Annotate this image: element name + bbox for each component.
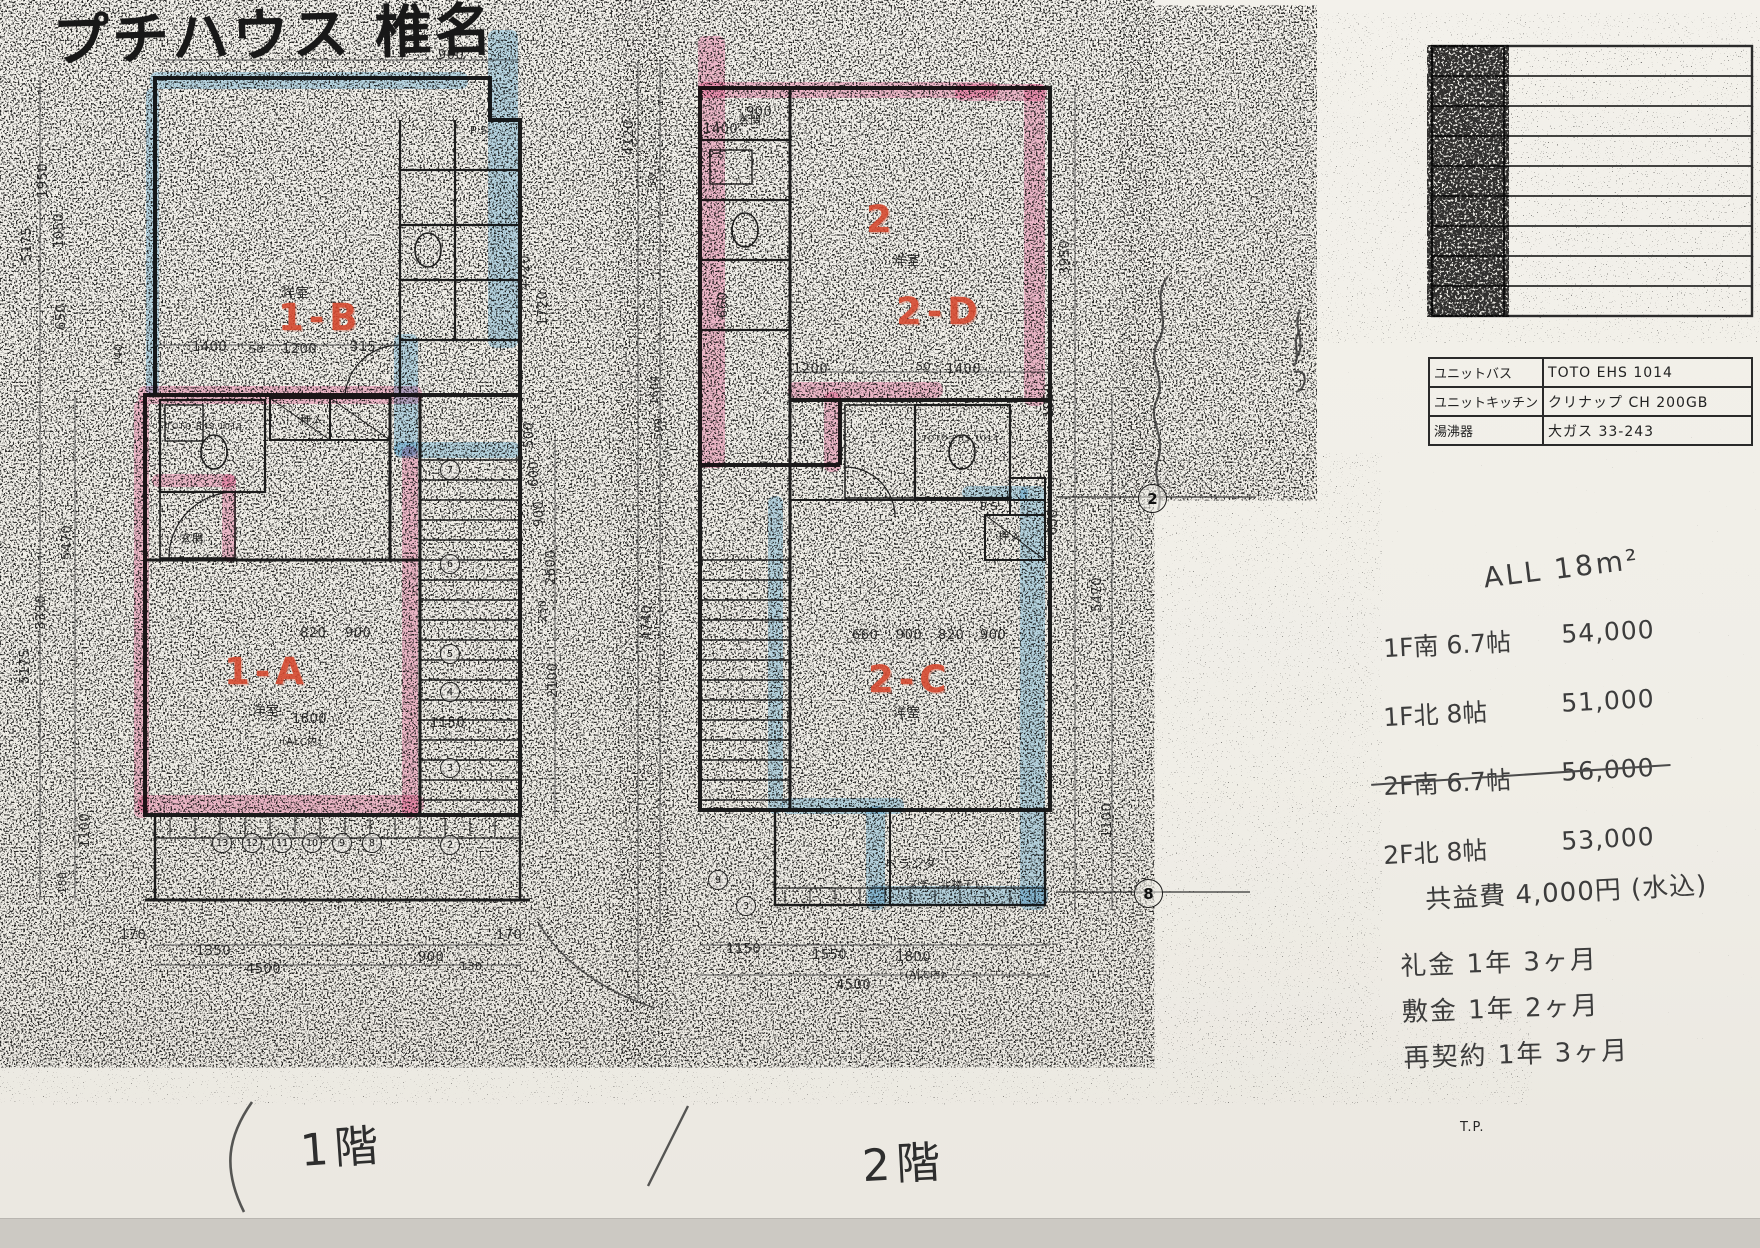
- term-lines: 礼金 1年 3ヶ月敷金 1年 2ヶ月再契約 1年 3ヶ月: [1400, 938, 1630, 1084]
- rent-price: 54,000: [1561, 615, 1656, 656]
- plan-dim: 1150: [726, 942, 761, 957]
- plan-circ: 4: [440, 682, 460, 702]
- plan-room: スチール物干し: [908, 876, 985, 891]
- plan-dim: 1950: [36, 163, 51, 198]
- plan-dim: 3330: [34, 595, 49, 630]
- plan-dim: 1100: [78, 813, 93, 848]
- plan-dim: 50: [646, 173, 659, 188]
- plan-dim: 180: [56, 872, 69, 895]
- tp-note: T.P.: [1460, 1120, 1484, 1135]
- plan-circ: 5: [440, 644, 460, 664]
- plan-dim: 1100: [1100, 803, 1115, 838]
- floor2-label: 2階: [860, 1126, 947, 1194]
- plan-circ: 6: [440, 554, 460, 574]
- plan-dim: 1720: [536, 291, 551, 326]
- plan-dim: 1350: [196, 944, 231, 959]
- equipment-label: ユニットバス: [1429, 358, 1543, 387]
- plan-circ: 2: [440, 835, 460, 855]
- plan-room: 洋室: [252, 700, 280, 719]
- plan-circ: 9: [332, 833, 352, 853]
- plan-dim: 50: [916, 360, 931, 373]
- plan-room: P.S.: [470, 124, 493, 137]
- plan-dim: 5175: [20, 227, 35, 262]
- plan-dim: 140: [112, 344, 125, 367]
- plan-room: 洋室: [893, 250, 921, 269]
- unit-label-1b: 1-B: [278, 296, 362, 339]
- rent-room: 1F南 6.7帖: [1382, 622, 1512, 665]
- plan-dim: 599: [652, 418, 665, 441]
- rent-price: 56,000: [1561, 753, 1656, 794]
- rent-room: 1F北 8帖: [1382, 693, 1488, 734]
- unit-label-2c: 2-C: [868, 658, 951, 701]
- plan-room: P.S.: [708, 150, 729, 161]
- plan-dim: 315: [350, 340, 376, 355]
- plan-circ: 13: [212, 833, 232, 853]
- plan-dim: 900: [980, 628, 1006, 643]
- plan-dim: 130: [460, 960, 483, 973]
- equipment-table: ユニットバスTOTO EHS 1014ユニットキッチンクリナップ CH 200G…: [1428, 357, 1753, 446]
- floor2-number: 2: [866, 198, 897, 241]
- plan-dim: 1050: [52, 213, 67, 248]
- plan-dim: 660: [716, 292, 731, 318]
- plan-dim: 900: [418, 950, 444, 965]
- plan-circ: 10: [302, 833, 322, 853]
- term-line: 敷金 1年 2ヶ月: [1401, 984, 1628, 1029]
- equipment-row: ユニットバスTOTO EHS 1014: [1429, 358, 1752, 387]
- plan-circ: 7: [440, 460, 460, 480]
- equipment-row: ユニットキッチンクリナップ CH 200GB: [1429, 387, 1752, 416]
- plan-dim: 170: [496, 928, 522, 943]
- plan-dim: 1400: [192, 340, 227, 355]
- plan-dim: 1800: [292, 712, 327, 727]
- plan-dim: 900: [532, 501, 547, 527]
- equipment-label: 湯沸器: [1429, 416, 1543, 445]
- plan-dim: 1550: [812, 948, 847, 963]
- plan-dim: 900: [746, 105, 772, 120]
- rent-room: 2F北 8帖: [1382, 831, 1488, 872]
- unit-label-1a: 1-A: [224, 650, 309, 693]
- plan-circ: 9: [708, 870, 728, 890]
- plan-dim: 600: [527, 461, 542, 487]
- plan-dim: 170: [120, 928, 146, 943]
- rent-room: 2F南 6.7帖: [1382, 760, 1512, 803]
- plan-room: 玄関: [180, 530, 204, 546]
- plan-dim: 3950: [1058, 240, 1073, 275]
- term-line: 再契約 1年 3ヶ月: [1403, 1030, 1630, 1075]
- plan-dim: 5175: [18, 649, 33, 684]
- plan-dim: 650: [1046, 509, 1061, 535]
- rent-line: 2F北 8帖53,000: [1382, 822, 1656, 872]
- sheet-title: プチハウス 椎名: [51, 0, 496, 78]
- plan-dim: 1200: [282, 342, 317, 357]
- equipment-row: 湯沸器大ガス 33-243: [1429, 416, 1752, 445]
- plan-dim: 900: [896, 628, 922, 643]
- plan-dim: 900: [345, 626, 371, 641]
- plan-dim: (ALC内): [282, 733, 322, 748]
- plan-dim: 820: [938, 628, 964, 643]
- plan-room: 押入: [300, 412, 324, 428]
- rent-line: 2F南 6.7帖56,000: [1382, 753, 1656, 803]
- plan-circ: 8: [362, 833, 382, 853]
- plan-circ: 11: [272, 833, 292, 853]
- plan-circ: 3: [440, 758, 460, 778]
- plan-dim: 1604: [648, 375, 661, 405]
- plan-room: 洋室: [282, 282, 310, 301]
- plan-circ: 12: [242, 833, 262, 853]
- plan-dim: 5470: [1090, 577, 1105, 612]
- plan-room: TOTO EHS 1014: [166, 422, 243, 431]
- plan-dim: (ALC内): [905, 966, 945, 981]
- equipment-label: ユニットキッチン: [1429, 387, 1543, 416]
- plan-dim: 2600: [544, 550, 559, 585]
- plan-dim: 1400: [703, 122, 738, 137]
- rent-price: 51,000: [1561, 684, 1656, 725]
- plan-dim: 4720: [518, 255, 533, 290]
- plan-dim: 820: [300, 626, 326, 641]
- paper-edge: [0, 1218, 1760, 1248]
- unit-label-2d: 2-D: [896, 290, 983, 333]
- plan-dim: 1200: [793, 362, 828, 377]
- plan-dim: 50: [249, 343, 264, 356]
- plan-dim: 4500: [836, 978, 871, 993]
- plan-room: 洋室: [893, 702, 921, 721]
- plan-circ: 3: [736, 896, 756, 916]
- plan-dim: 250: [536, 600, 549, 623]
- plan-dim: 650: [54, 304, 69, 330]
- plan-dim: 1800: [896, 950, 931, 965]
- rent-line: 1F北 8帖51,000: [1382, 684, 1656, 734]
- grid-marker-8: 8: [1134, 879, 1163, 908]
- equipment-value: 大ガス 33-243: [1543, 416, 1752, 445]
- plan-dim: 4120: [622, 120, 637, 155]
- plan-dim: 2100: [546, 663, 561, 698]
- plan-dim: 660: [852, 628, 878, 643]
- rent-lines: 1F南 6.7帖54,0001F北 8帖51,0002F南 6.7帖56,000…: [1383, 622, 1655, 898]
- rent-line: 1F南 6.7帖54,000: [1382, 615, 1656, 665]
- plan-room: 押入: [998, 528, 1022, 544]
- term-line: 礼金 1年 3ヶ月: [1400, 938, 1627, 983]
- equipment-value: TOTO EHS 1014: [1543, 358, 1752, 387]
- floor1-label: 1階: [298, 1109, 386, 1179]
- scanned-floorplan-sheet: 1-B1-A22-D2-C洋室洋室洋室洋室押入押入玄関玄関P.S.P.S.P.S…: [0, 0, 1760, 1248]
- plan-dim: 1150: [430, 716, 465, 731]
- grid-marker-2: 2: [1138, 484, 1167, 513]
- plan-dim: 4500: [246, 962, 281, 977]
- equipment-table-body: ユニットバスTOTO EHS 1014ユニットキッチンクリナップ CH 200G…: [1429, 358, 1752, 445]
- plan-dim: 5470: [60, 525, 75, 560]
- plan-dim: 500: [522, 422, 537, 448]
- plan-dim: 1050: [1042, 383, 1057, 418]
- plan-room: P.S.: [980, 500, 1003, 513]
- rent-price: 53,000: [1561, 822, 1656, 863]
- plan-room: TOTO EHS 1014: [922, 434, 999, 443]
- plan-dim: 1400: [946, 362, 981, 377]
- plan-room: ベランダ: [885, 855, 937, 872]
- plan-dim: 4740: [640, 605, 655, 640]
- equipment-value: クリナップ CH 200GB: [1543, 387, 1752, 416]
